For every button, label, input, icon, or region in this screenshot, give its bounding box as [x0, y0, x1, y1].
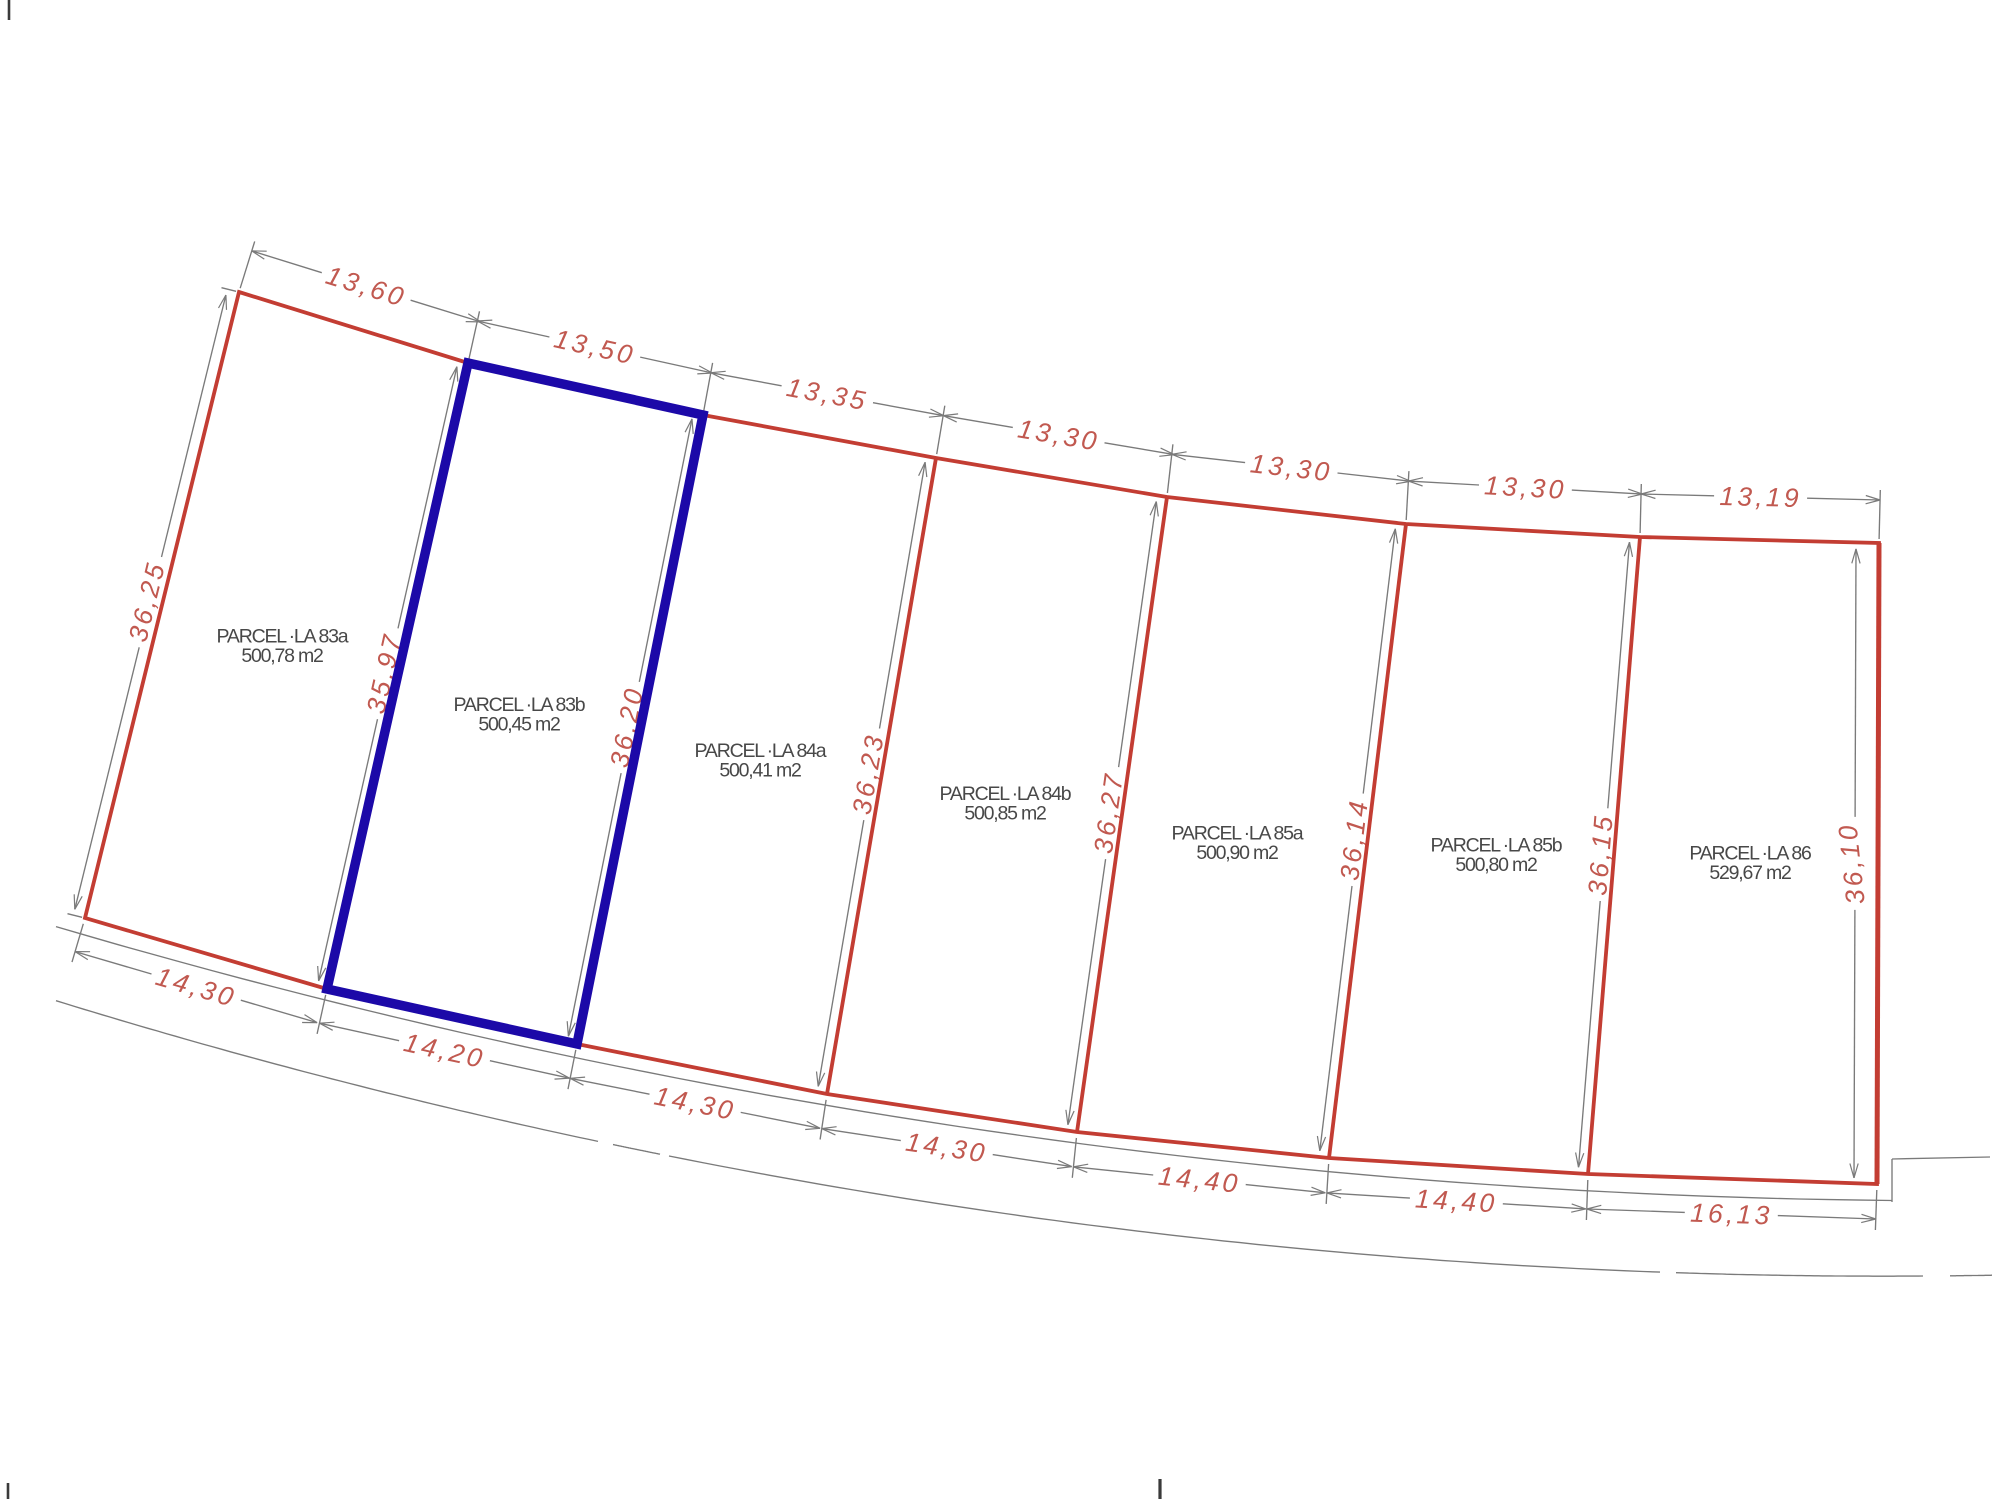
svg-text:500,90 m2: 500,90 m2	[1196, 842, 1278, 864]
svg-text:500,80 m2: 500,80 m2	[1455, 854, 1537, 876]
svg-text:500,85 m2: 500,85 m2	[964, 803, 1046, 825]
svg-text:13,19: 13,19	[1719, 481, 1802, 513]
svg-text:16,13: 16,13	[1690, 1198, 1773, 1231]
svg-text:500,41 m2: 500,41 m2	[719, 760, 801, 782]
svg-text:500,78 m2: 500,78 m2	[241, 645, 323, 667]
svg-text:14,40: 14,40	[1414, 1183, 1498, 1218]
svg-text:13,30: 13,30	[1483, 470, 1567, 505]
svg-text:500,45 m2: 500,45 m2	[478, 714, 560, 736]
svg-text:529,67 m2: 529,67 m2	[1709, 862, 1791, 884]
